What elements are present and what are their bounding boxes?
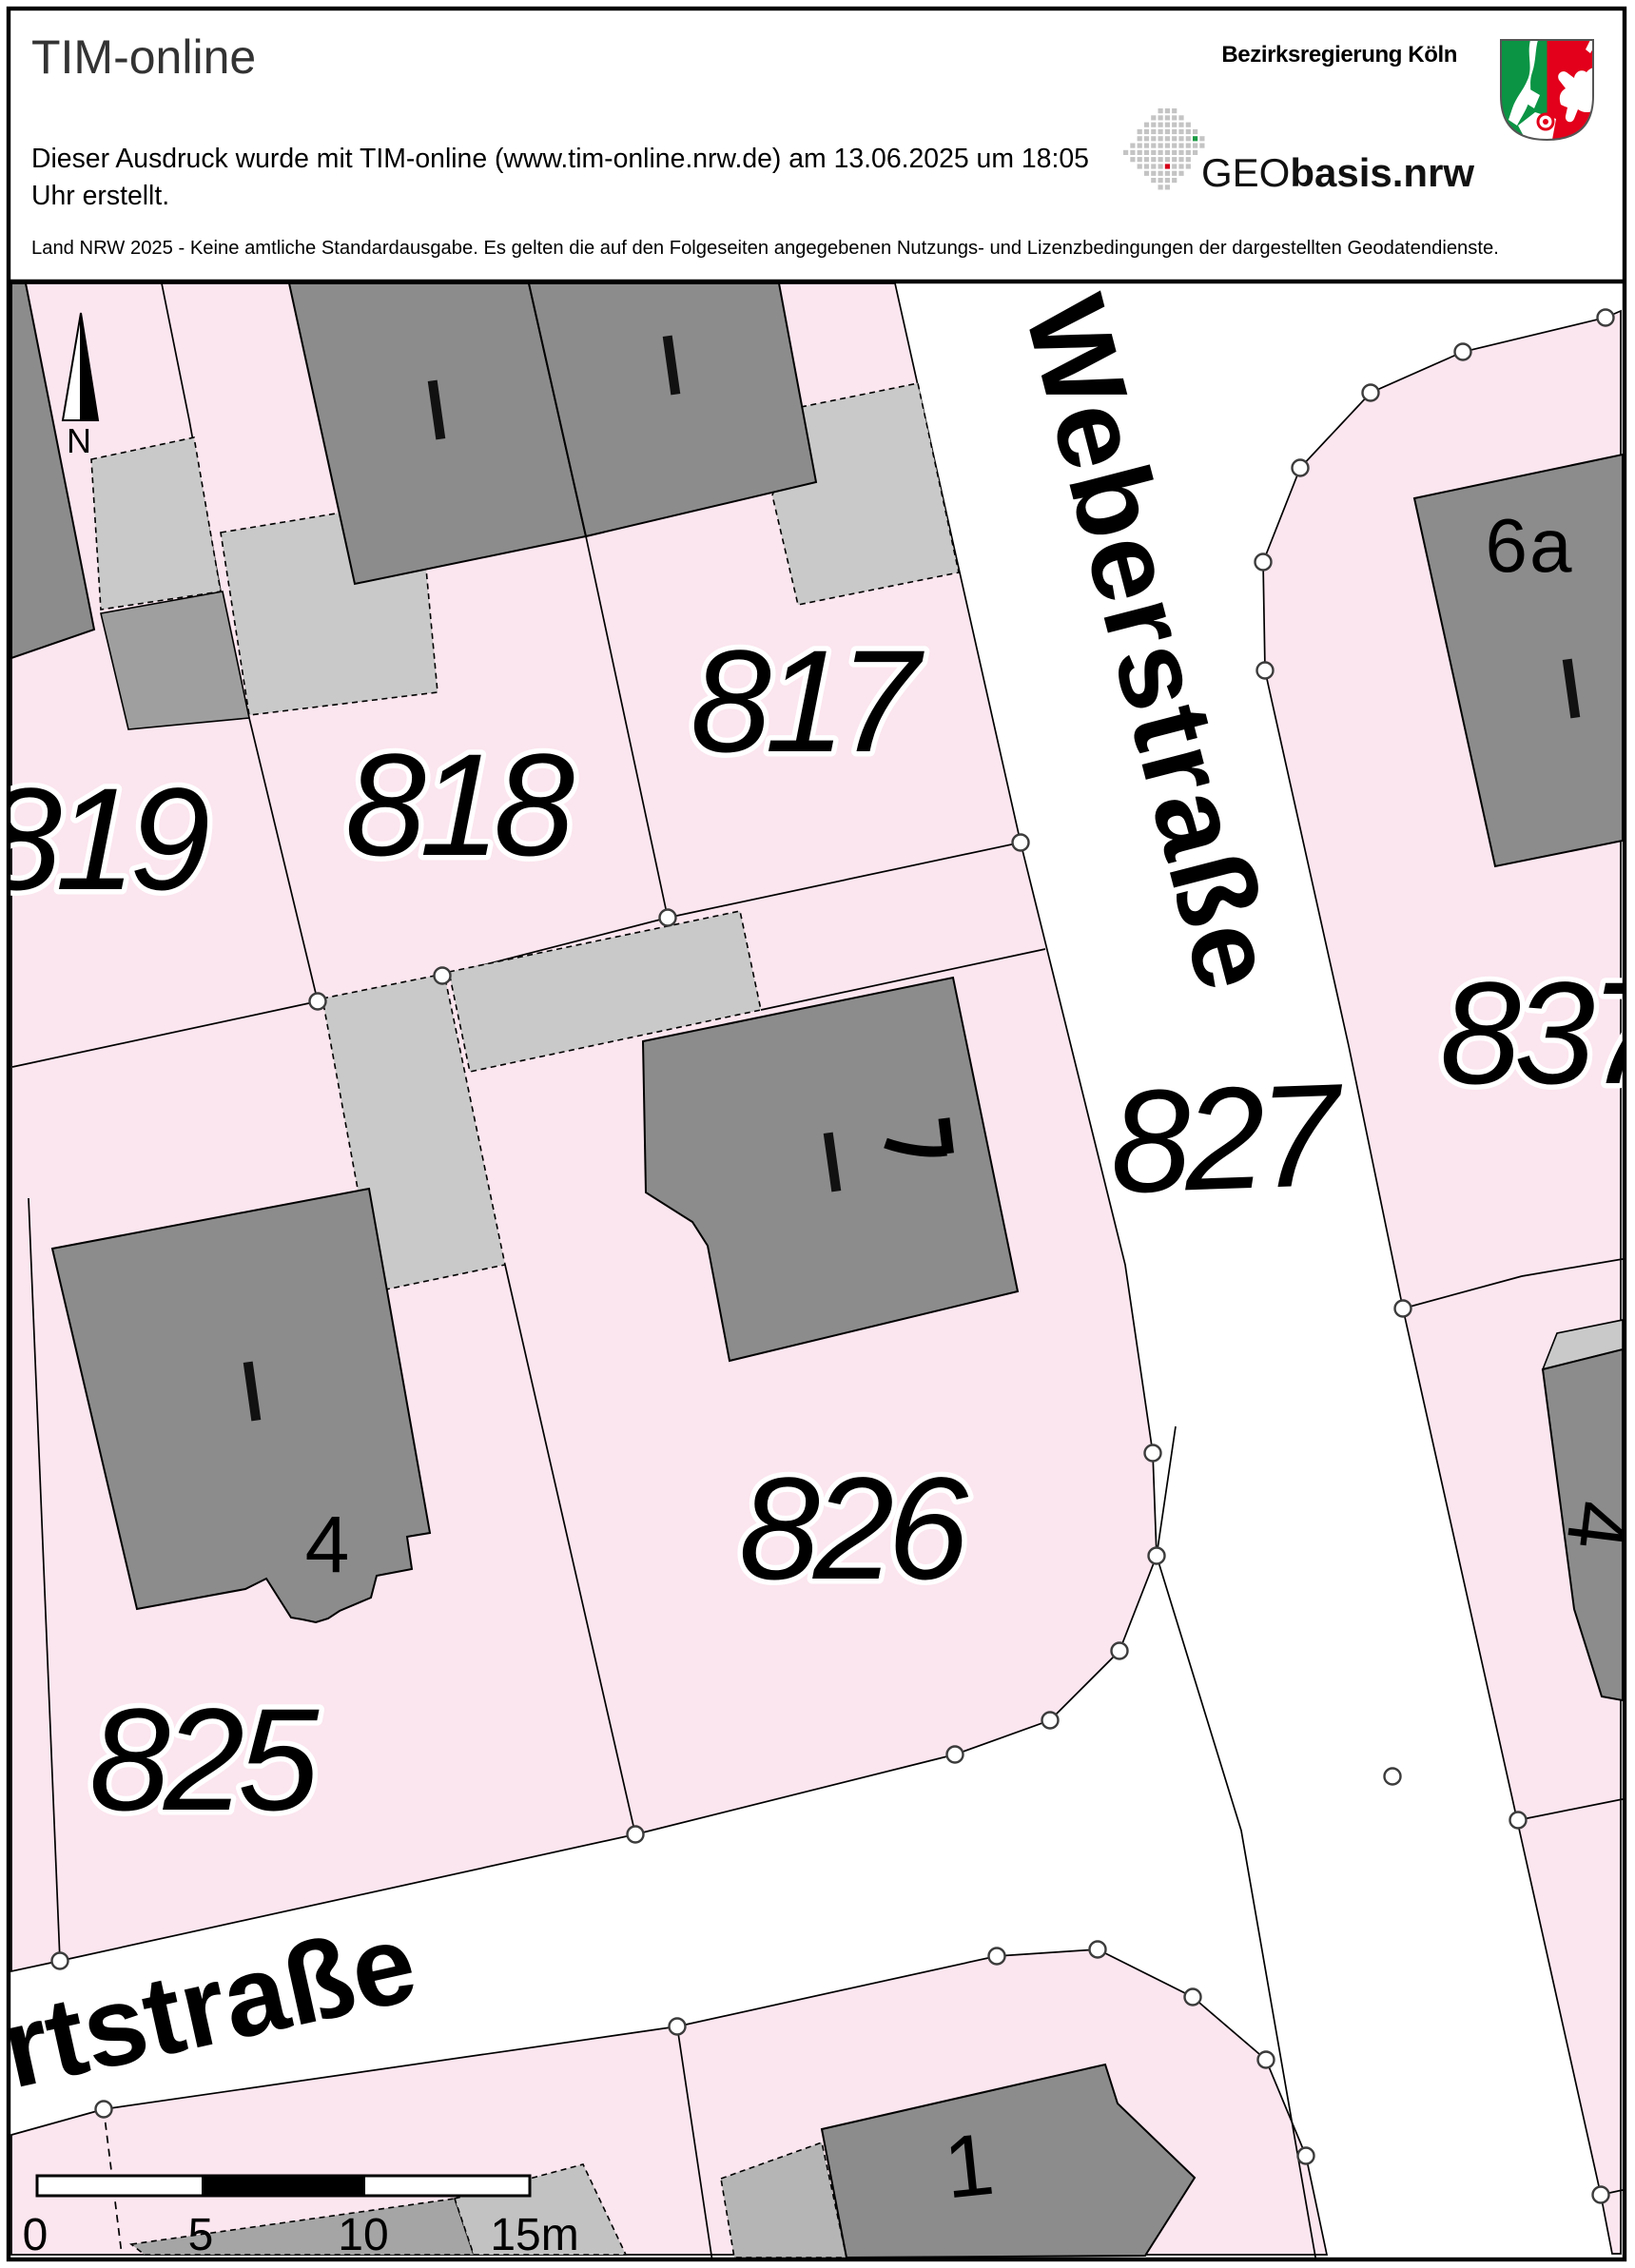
svg-text:826: 826 bbox=[739, 1447, 969, 1610]
svg-text:819: 819 bbox=[0, 758, 207, 921]
svg-text:827: 827 bbox=[1107, 1054, 1347, 1224]
svg-text:6a: 6a bbox=[1486, 503, 1574, 588]
svg-text:4: 4 bbox=[305, 1500, 350, 1589]
svg-text:825: 825 bbox=[89, 1678, 320, 1841]
svg-text:818: 818 bbox=[345, 724, 574, 886]
svg-text:5: 5 bbox=[188, 2210, 214, 2260]
svg-text:N: N bbox=[67, 421, 91, 460]
svg-text:15m: 15m bbox=[490, 2210, 578, 2260]
svg-text:837: 837 bbox=[1440, 952, 1635, 1115]
svg-text:0: 0 bbox=[23, 2210, 49, 2260]
svg-text:10: 10 bbox=[338, 2210, 388, 2260]
svg-text:GEObasis.nrw: GEObasis.nrw bbox=[1201, 150, 1474, 195]
svg-text:817: 817 bbox=[691, 620, 925, 783]
svg-text:1: 1 bbox=[940, 2116, 999, 2218]
